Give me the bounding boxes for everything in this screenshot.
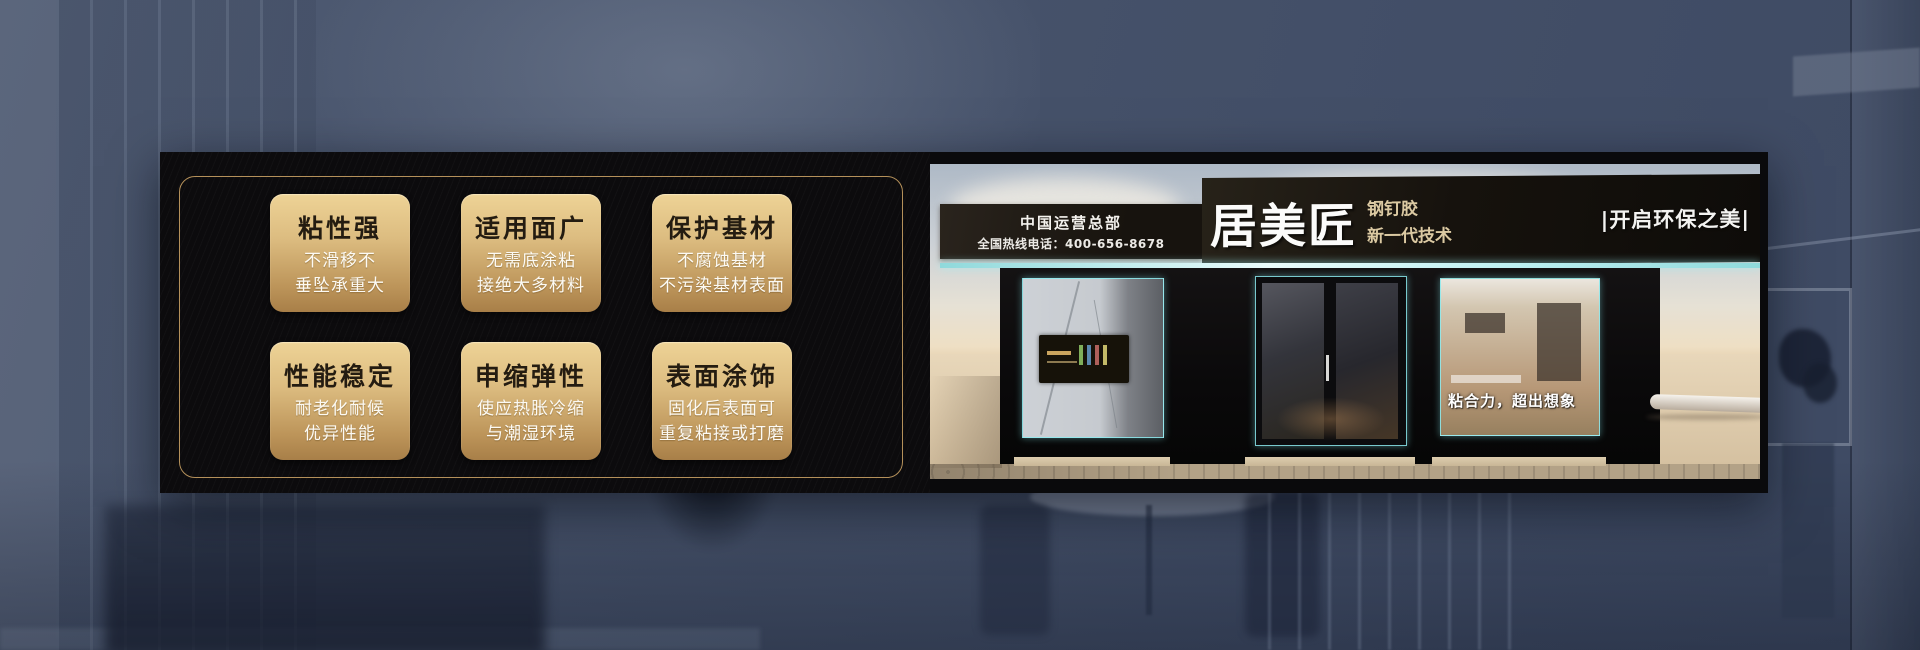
interior-shelf	[1465, 313, 1505, 333]
hq-sign: 中国运营总部 全国热线电话：400-656-8678	[940, 204, 1202, 259]
brand-tagline: 新一代技术	[1367, 221, 1452, 247]
store-shadow	[930, 376, 1002, 468]
store-step	[1245, 457, 1415, 466]
door-interior-glow	[1276, 397, 1386, 441]
feature-card-wide-use: 适用面广 无需底涂粘 接绝大多材料	[461, 194, 601, 312]
card-line: 固化后表面可	[668, 399, 776, 420]
card-title: 适用面广	[475, 209, 587, 245]
brand-name: 居美匠	[1210, 186, 1357, 256]
card-line: 重复粘接或打磨	[659, 424, 785, 445]
bench-shadow	[1646, 414, 1760, 420]
card-title: 表面涂饰	[666, 357, 778, 393]
card-line: 不污染基材表面	[659, 276, 785, 297]
board-text-bar	[1047, 361, 1077, 363]
card-line: 接绝大多材料	[477, 276, 585, 297]
product-bottle	[1079, 345, 1083, 365]
background-table-leg	[1146, 505, 1152, 615]
background-pedestal	[1782, 443, 1834, 618]
brand-subtitle: 钢钉胶 新一代技术	[1367, 194, 1452, 247]
product-bottle	[1087, 345, 1091, 365]
card-title: 保护基材	[666, 209, 778, 245]
promo-banner: 粘性强 不滑移不 垂坠承重大 适用面广 无需底涂粘 接绝大多材料 保护基材 不腐…	[0, 0, 1920, 650]
eco-slogan: |开启环保之美|	[1601, 203, 1750, 234]
card-line: 耐老化耐候	[295, 399, 385, 420]
card-line: 不腐蚀基材	[677, 251, 767, 272]
card-title: 性能稳定	[284, 357, 396, 393]
product-bottle	[1095, 345, 1099, 365]
background-picture-frame	[1762, 288, 1852, 446]
card-line: 优异性能	[304, 424, 376, 445]
store-door	[1255, 276, 1407, 446]
store-window-right: 粘合力，超出想象	[1440, 278, 1600, 436]
store-step	[1014, 457, 1170, 466]
feature-board: 粘性强 不滑移不 垂坠承重大 适用面广 无需底涂粘 接绝大多材料 保护基材 不腐…	[160, 152, 1768, 493]
card-line: 使应热胀冷缩	[477, 399, 585, 420]
ground-pavement	[930, 464, 1760, 479]
window-slogan: 粘合力，超出想象	[1448, 390, 1576, 411]
feature-cards: 粘性强 不滑移不 垂坠承重大 适用面广 无需底涂粘 接绝大多材料 保护基材 不腐…	[270, 194, 792, 460]
product-name: 钢钉胶	[1367, 194, 1452, 220]
card-line: 无需底涂粘	[486, 251, 576, 272]
door-handle	[1326, 355, 1329, 381]
feature-card-elastic: 申缩弹性 使应热胀冷缩 与潮湿环境	[461, 342, 601, 460]
store-facade: 粘合力，超出想象	[1000, 268, 1660, 464]
feature-card-adhesion: 粘性强 不滑移不 垂坠承重大	[270, 194, 410, 312]
hq-hotline: 全国热线电话：400-656-8678	[978, 235, 1165, 252]
background-right-wall	[1850, 0, 1920, 650]
storefront-photo: 中国运营总部 全国热线电话：400-656-8678 居美匠 钢钉胶 新一代技术…	[930, 164, 1760, 479]
product-bottle	[1103, 345, 1107, 365]
product-display-board	[1039, 335, 1129, 383]
brand-sign: 居美匠 钢钉胶 新一代技术 |开启环保之美|	[1202, 174, 1760, 266]
card-title: 申缩弹性	[475, 357, 587, 393]
feature-card-protect: 保护基材 不腐蚀基材 不污染基材表面	[652, 194, 792, 312]
card-title: 粘性强	[298, 209, 382, 245]
feature-card-stable: 性能稳定 耐老化耐候 优异性能	[270, 342, 410, 460]
background-furniture	[105, 505, 545, 650]
card-line: 不滑移不	[304, 251, 376, 272]
feature-card-finish: 表面涂饰 固化后表面可 重复粘接或打磨	[652, 342, 792, 460]
plant-silhouette	[1803, 363, 1837, 403]
interior-shelf	[1537, 303, 1581, 381]
card-line: 与潮湿环境	[486, 424, 576, 445]
hq-title: 中国运营总部	[1020, 212, 1122, 233]
card-line: 垂坠承重大	[295, 276, 385, 297]
store-step	[1432, 457, 1606, 466]
interior-counter	[1451, 375, 1521, 383]
background-chair	[980, 505, 1050, 635]
store-window-left	[1022, 278, 1164, 438]
feature-panel: 粘性强 不滑移不 垂坠承重大 适用面广 无需底涂粘 接绝大多材料 保护基材 不腐…	[160, 152, 930, 493]
board-text-bar	[1047, 351, 1071, 355]
